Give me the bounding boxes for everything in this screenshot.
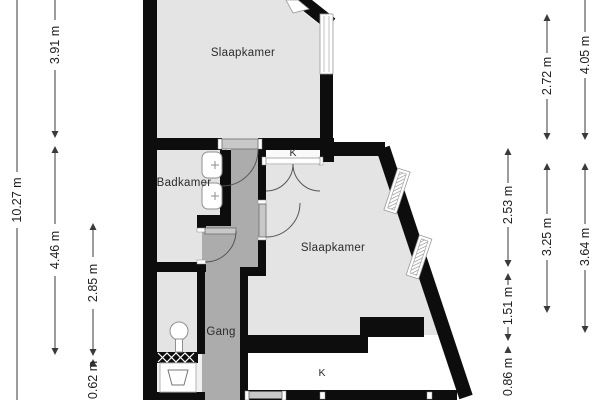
closet-top-label: K [289,147,296,159]
wall-top-horizontal-right [333,142,385,156]
dim-label-left-middle: 4.46 m [48,231,62,269]
dimension-right-inner-top: 2.53 m [501,148,515,267]
wall-wc-right [197,272,205,354]
dim-label-left-inner-bottom: 0.62 m [86,361,100,399]
wall-bottom-left-outer [143,392,205,400]
floor-plan-page: Slaapkamer Badkamer K Slaapkamer Gang K … [0,0,600,400]
dim-label-right-outer-bottom: 3.64 m [578,228,592,266]
wall-s1-bottom-left [157,138,222,150]
window-s1-right [320,14,333,74]
closet-bottom-label: K [318,367,325,379]
dimension-left-inner-middle: 2.85 m [86,223,100,356]
room-label-slaapkamer-top: Slaapkamer [211,47,275,59]
dim-label-right-outer-top: 4.05 m [578,36,592,74]
room-slaapkamer-top-floor [157,0,326,145]
dim-label-right-middle-top: 2.72 m [540,57,554,95]
wall-s1-right [320,70,333,142]
dimension-left-inner-bottom: 0.62 m [86,359,100,399]
dimension-lines-right: 2.53 m 1.51 m 0.86 m 2.72 m 3.25 m [501,0,592,396]
dim-label-right-middle-bottom: 3.25 m [540,218,554,256]
dimension-right-outer-bottom: 3.64 m [578,163,592,333]
dimension-right-middle-top: 2.72 m [540,14,554,140]
wall-s2-bottom-left [245,335,368,353]
dimension-left-top: 3.91 m [48,0,62,138]
room-label-slaapkamer-right: Slaapkamer [301,242,365,254]
dimension-total-left: 10.27 m [10,0,24,400]
dim-label-right-inner-middle: 1.51 m [501,287,515,325]
dimension-right-middle-bottom: 3.25 m [540,163,554,313]
wall-s2-bottom-right [360,317,424,337]
dim-label-left-inner-middle: 2.85 m [86,264,100,302]
wall-left-outer [143,0,157,400]
dimension-left-middle: 4.46 m [48,146,62,355]
dim-label-left-top: 3.91 m [48,26,62,64]
dim-label-right-inner-bottom: 0.86 m [501,358,515,396]
wall-gang-right-mid [258,237,266,269]
floor-plan-canvas: Slaapkamer Badkamer K Slaapkamer Gang K … [0,0,600,400]
dim-label-total-left: 10.27 m [10,177,24,222]
dimension-lines-left: 10.27 m 3.91 m 4.46 m 2.85 m 0.62 m [10,0,100,400]
room-label-badkamer: Badkamer [157,177,212,189]
sink-icon [202,152,222,178]
wall-gang-jog [240,267,266,276]
dim-label-right-inner-top: 2.53 m [501,186,515,224]
dimension-right-outer-top: 4.05 m [578,0,592,140]
room-label-gang: Gang [206,326,235,338]
dimension-right-inner-bottom: 0.86 m [501,346,515,396]
washbasin-icon [160,363,196,392]
dimension-right-inner-middle: 1.51 m [501,273,515,341]
